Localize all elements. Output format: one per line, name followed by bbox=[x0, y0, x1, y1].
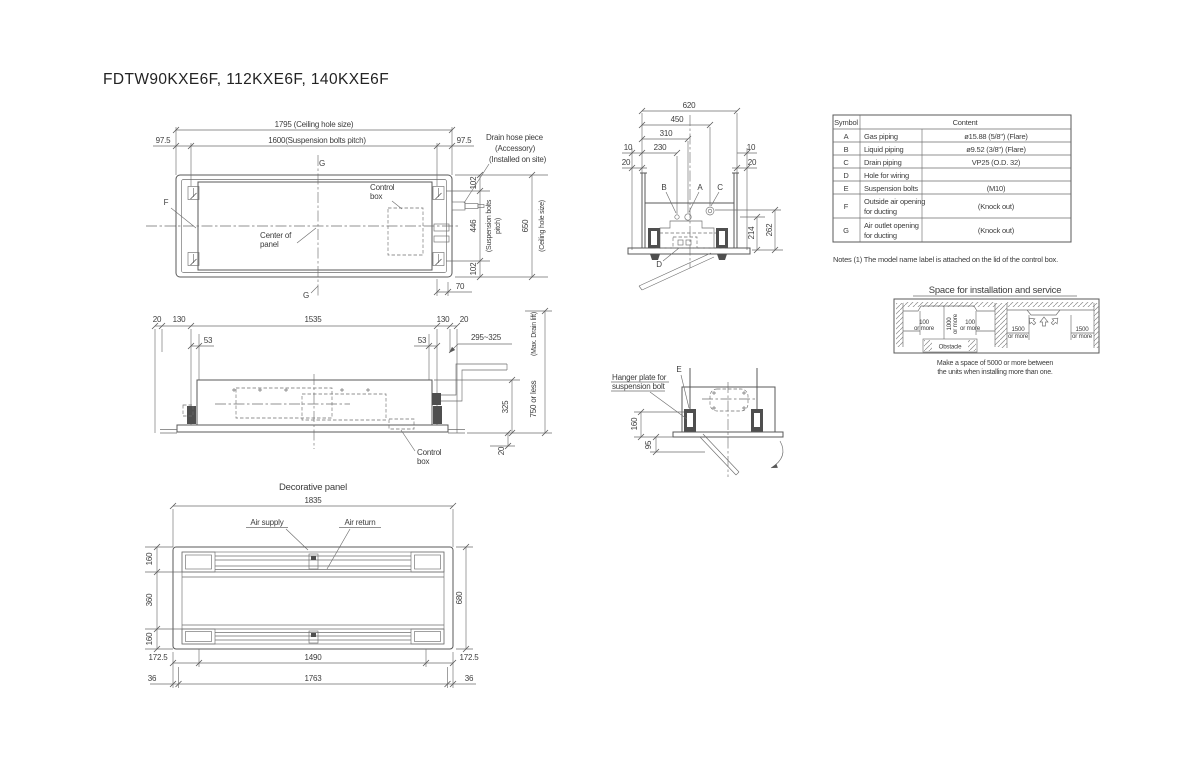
dim-offset-right: 97.5 bbox=[457, 136, 473, 145]
drain-hose-label-2: (Accessory) bbox=[495, 144, 536, 153]
dim-1763: 1763 bbox=[305, 674, 323, 683]
table-header-symbol: Symbol bbox=[834, 118, 858, 127]
row-f-value: (Knock out) bbox=[978, 202, 1015, 211]
dim-450: 450 bbox=[671, 115, 684, 124]
dim-130-right: 130 bbox=[437, 315, 450, 324]
dim-262: 262 bbox=[765, 223, 774, 236]
control-box-label-2: box bbox=[417, 457, 429, 466]
dim-100-left-note: or more bbox=[914, 325, 935, 332]
dim-36-left: 36 bbox=[148, 674, 157, 683]
dim-130-left: 130 bbox=[173, 315, 186, 324]
dim-10-right: 10 bbox=[747, 143, 756, 152]
dim-1000-note: or more bbox=[952, 313, 959, 334]
symbol-b-label: B bbox=[661, 183, 666, 192]
dim-70: 70 bbox=[456, 282, 465, 291]
dim-1500-right: 1500 bbox=[1076, 326, 1090, 333]
row-f-name2: for ducting bbox=[864, 207, 897, 216]
row-c-value: VP25 (O.D. 32) bbox=[972, 158, 1021, 167]
row-d-symbol: D bbox=[843, 171, 849, 180]
table-header-content: Content bbox=[953, 118, 979, 127]
dim-20-bottom: 20 bbox=[497, 446, 506, 455]
section-mark-g-bottom: G bbox=[303, 291, 309, 300]
row-g-symbol: G bbox=[843, 226, 849, 235]
dim-10-left: 10 bbox=[624, 143, 633, 152]
row-b-name: Liquid piping bbox=[864, 145, 904, 154]
symbol-d-label: D bbox=[656, 260, 662, 269]
installation-caption-1: Make a space of 5000 or more between bbox=[937, 360, 1053, 367]
row-g-name2: for ducting bbox=[864, 231, 897, 240]
dim-1490: 1490 bbox=[305, 653, 323, 662]
drawing-page: FDTW90KXE6F, 112KXE6F, 140KXE6F bbox=[0, 0, 1200, 767]
row-g-name: Air outlet opening bbox=[864, 221, 919, 230]
dim-100-right-note: or more bbox=[960, 325, 981, 332]
dim-1535: 1535 bbox=[305, 315, 323, 324]
dim-1500-left: 1500 bbox=[1012, 326, 1026, 333]
dim-1725-left: 172.5 bbox=[148, 653, 168, 662]
row-a-name: Gas piping bbox=[864, 132, 898, 141]
row-e-value: (M10) bbox=[987, 184, 1006, 193]
row-e-name: Suspension bolts bbox=[864, 184, 918, 193]
dim-325: 325 bbox=[501, 400, 510, 413]
dim-446-note-2: pitch) bbox=[495, 218, 502, 234]
dim-20-left: 20 bbox=[622, 158, 631, 167]
dim-1500-right-note: or more bbox=[1072, 333, 1093, 340]
drain-hose-label-3: (Installed on site) bbox=[489, 155, 547, 164]
row-b-symbol: B bbox=[844, 145, 849, 154]
dim-680: 680 bbox=[455, 591, 464, 604]
dim-102-top: 102 bbox=[469, 176, 478, 189]
symbol-c-label: C bbox=[717, 183, 723, 192]
control-box-label-1: Control bbox=[417, 448, 442, 457]
page-title: FDTW90KXE6F, 112KXE6F, 140KXE6F bbox=[103, 71, 389, 88]
dim-53-right: 53 bbox=[418, 336, 427, 345]
dim-53-left: 53 bbox=[204, 336, 213, 345]
dim-20-right: 20 bbox=[748, 158, 757, 167]
installation-title: Space for installation and service bbox=[929, 285, 1062, 296]
row-f-name: Outside air opening bbox=[864, 197, 925, 206]
installation-caption-2: the units when installing more than one. bbox=[937, 369, 1053, 376]
dim-20-left: 20 bbox=[153, 315, 162, 324]
symbol-e-label: E bbox=[676, 365, 681, 374]
row-b-value: ø9.52 (3/8") (Flare) bbox=[966, 145, 1026, 154]
center-of-panel-label-2: panel bbox=[260, 240, 279, 249]
dim-160-top: 160 bbox=[145, 552, 154, 565]
row-a-value: ø15.88 (5/8") (Flare) bbox=[964, 132, 1028, 141]
notes-text: Notes (1) The model name label is attach… bbox=[833, 255, 1058, 264]
row-f-symbol: F bbox=[844, 202, 849, 211]
hanger-plate-label-2: suspension bolt bbox=[612, 382, 666, 391]
dim-160: 160 bbox=[630, 417, 639, 430]
dim-360: 360 bbox=[145, 593, 154, 606]
dim-214: 214 bbox=[747, 226, 756, 239]
dim-102-bottom: 102 bbox=[469, 262, 478, 275]
air-supply-label: Air supply bbox=[250, 518, 283, 527]
dim-ceiling-width: 1795 (Ceiling hole size) bbox=[275, 120, 354, 129]
dim-1725-right: 172.5 bbox=[459, 653, 479, 662]
dim-160-bottom: 160 bbox=[145, 632, 154, 645]
dim-750-or-less: 750 or less bbox=[529, 380, 538, 417]
section-mark-g-top: G bbox=[319, 159, 325, 168]
air-return-label: Air return bbox=[345, 518, 376, 527]
dim-230: 230 bbox=[654, 143, 667, 152]
dim-1835: 1835 bbox=[305, 496, 323, 505]
technical-drawing: FDTW90KXE6F, 112KXE6F, 140KXE6F bbox=[0, 0, 1200, 767]
dim-446-note-1: (Suspension bolts bbox=[486, 199, 493, 252]
row-e-symbol: E bbox=[844, 184, 849, 193]
dim-1500-left-note: or more bbox=[1008, 333, 1029, 340]
dim-650-note: (Ceiling hole size) bbox=[539, 200, 546, 252]
dim-20-right: 20 bbox=[460, 315, 469, 324]
dim-offset-left: 97.5 bbox=[156, 136, 172, 145]
dim-95: 95 bbox=[644, 440, 653, 449]
row-a-symbol: A bbox=[844, 132, 849, 141]
control-box-label-2: box bbox=[370, 192, 382, 201]
dim-650: 650 bbox=[521, 219, 530, 232]
dim-620: 620 bbox=[683, 101, 696, 110]
row-c-name: Drain piping bbox=[864, 158, 902, 167]
max-drain-lift-note: (Max. Drain lift) bbox=[531, 312, 538, 356]
obstacle-label: Obstacle bbox=[939, 344, 963, 351]
row-g-value: (Knock out) bbox=[978, 226, 1015, 235]
drain-hose-label-1: Drain hose piece bbox=[486, 133, 544, 142]
decorative-panel-title: Decorative panel bbox=[279, 482, 347, 493]
center-of-panel-label-1: Center of bbox=[260, 231, 292, 240]
row-c-symbol: C bbox=[843, 158, 849, 167]
dim-bolt-pitch-width: 1600(Suspension bolts pitch) bbox=[268, 136, 366, 145]
dim-drain-range: 295~325 bbox=[471, 333, 502, 342]
hanger-plate-label-1: Hanger plate for bbox=[612, 373, 667, 382]
dim-310: 310 bbox=[660, 129, 673, 138]
symbol-f-label: F bbox=[164, 198, 169, 207]
control-box-label-1: Control bbox=[370, 183, 395, 192]
symbol-a-label: A bbox=[697, 183, 703, 192]
dim-36-right: 36 bbox=[465, 674, 474, 683]
dim-446: 446 bbox=[469, 219, 478, 232]
row-d-name: Hole for wiring bbox=[864, 171, 909, 180]
